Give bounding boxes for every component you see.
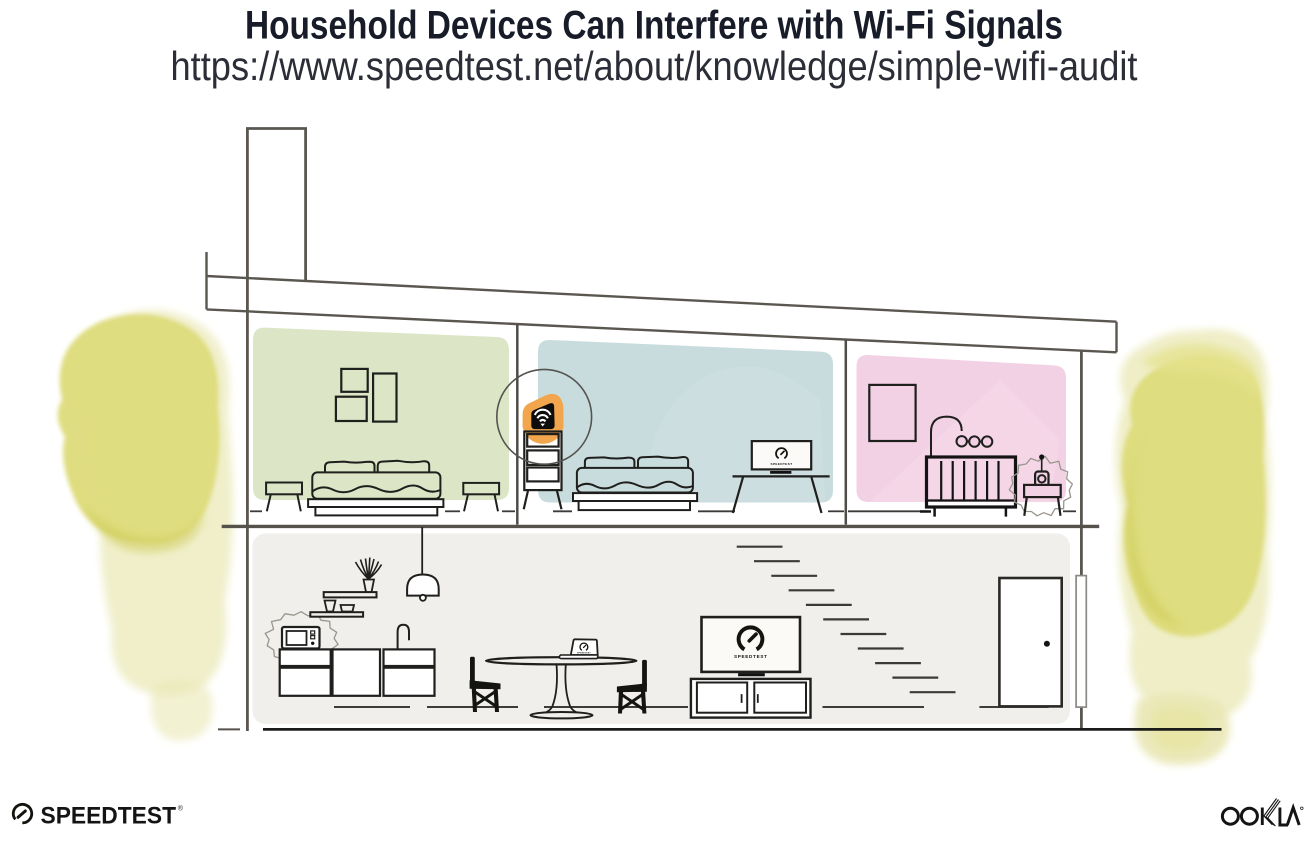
svg-text:https://www.speedtest.net/abou: https://www.speedtest.net/about/knowledg… xyxy=(171,43,1139,89)
svg-text:Household Devices Can Interfer: Household Devices Can Interfere with Wi-… xyxy=(245,4,1063,48)
svg-text:SPEEDTEST: SPEEDTEST xyxy=(734,654,768,659)
svg-text:®: ® xyxy=(178,805,184,813)
svg-text:SPEEDTEST: SPEEDTEST xyxy=(771,462,793,466)
svg-text:SPEEDTEST: SPEEDTEST xyxy=(41,802,177,829)
